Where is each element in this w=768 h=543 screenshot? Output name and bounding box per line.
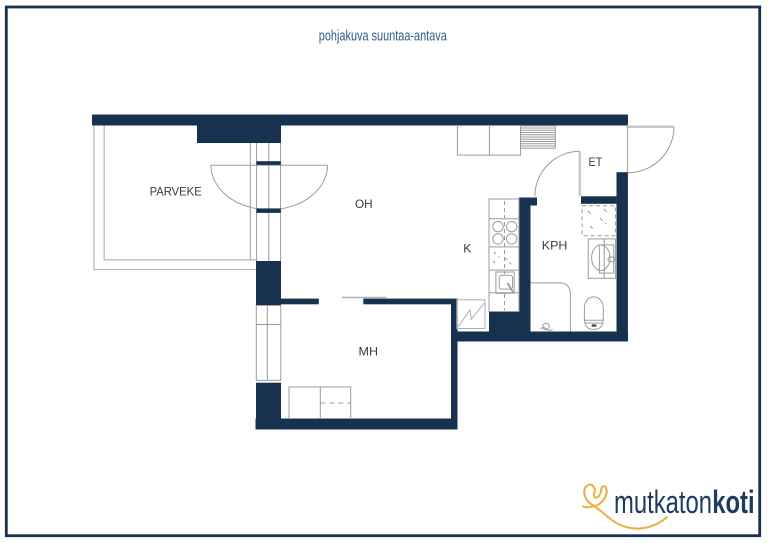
svg-text:PARVEKE: PARVEKE	[150, 185, 202, 199]
svg-text:mutkaton: mutkaton	[614, 484, 712, 520]
svg-text:OH: OH	[355, 197, 373, 211]
svg-text:ET: ET	[589, 155, 603, 169]
svg-text:pohjakuva suuntaa-antava: pohjakuva suuntaa-antava	[319, 28, 447, 45]
svg-text:koti: koti	[712, 484, 754, 520]
svg-text:KPH: KPH	[542, 238, 568, 252]
svg-text:K: K	[463, 242, 471, 256]
svg-text:MH: MH	[359, 345, 379, 359]
